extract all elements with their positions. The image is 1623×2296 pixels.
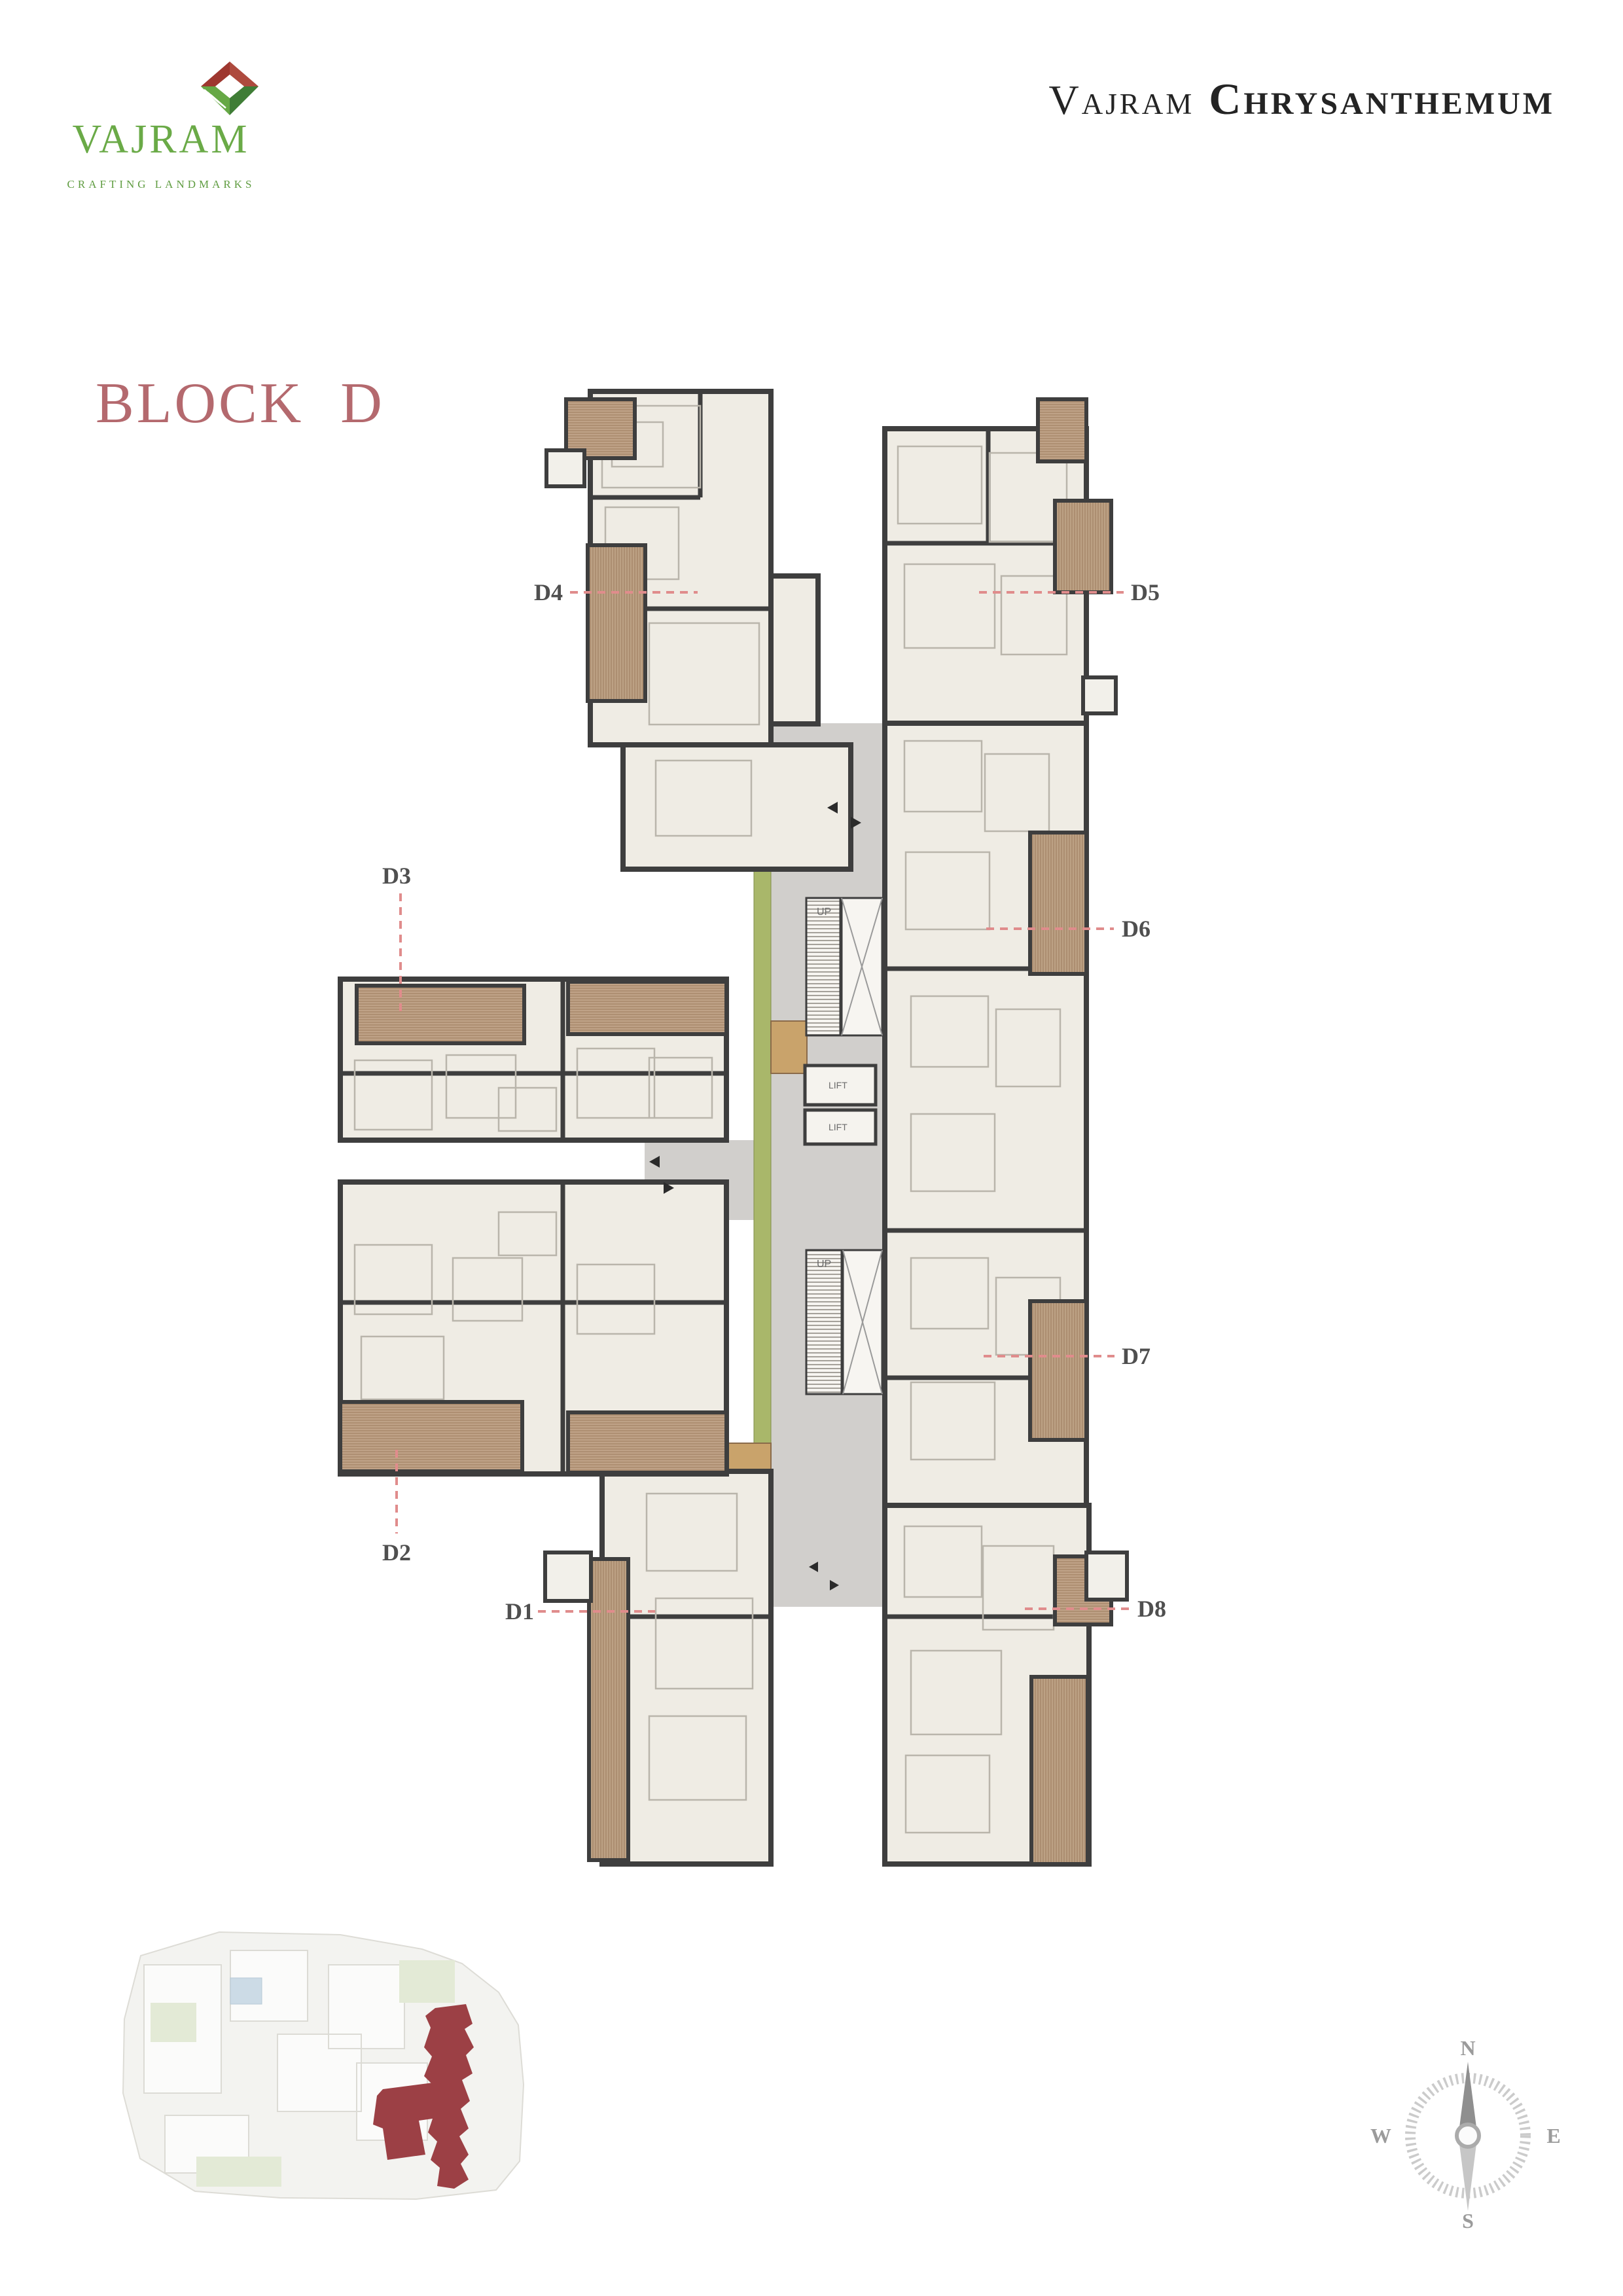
site-key-map <box>123 1932 524 2199</box>
unit-label-d3: D3 <box>382 863 411 889</box>
lift-core: LIFT LIFT <box>805 1066 876 1144</box>
stair-flight <box>806 898 840 1035</box>
balcony <box>357 986 524 1043</box>
unit-label-d7: D7 <box>1122 1343 1150 1369</box>
unit-label-d1: D1 <box>505 1598 534 1624</box>
balcony <box>1055 501 1111 592</box>
balcony <box>588 545 645 701</box>
balcony <box>568 1412 726 1473</box>
balcony <box>568 982 726 1034</box>
unit-label-d8: D8 <box>1137 1596 1166 1622</box>
compass-west-label: W <box>1370 2124 1391 2147</box>
compass-north-label: N <box>1460 2036 1475 2060</box>
unit-label-d2: D2 <box>382 1539 411 1566</box>
staircase-upper: UP <box>806 898 882 1035</box>
lift-label: LIFT <box>829 1080 847 1090</box>
balcony <box>589 1559 628 1860</box>
staircase-lower: UP <box>806 1250 882 1394</box>
unit-label-d5: D5 <box>1131 579 1160 605</box>
up-label: UP <box>817 906 831 918</box>
balcony <box>1030 1301 1086 1440</box>
balcony <box>1038 399 1086 461</box>
unit-label-d6: D6 <box>1122 916 1150 942</box>
compass-hub <box>1457 2125 1479 2147</box>
brochure-page: VAJRAM CRAFTING LANDMARKS VajramChrysant… <box>0 0 1623 2296</box>
compass-south-label: S <box>1462 2209 1474 2233</box>
balcony <box>1031 1677 1088 1864</box>
lift-label: LIFT <box>829 1122 847 1132</box>
balcony <box>1030 833 1086 974</box>
stair-flight <box>806 1250 842 1394</box>
compass-east-label: E <box>1546 2124 1560 2147</box>
unit-blocks <box>340 391 1089 1864</box>
unit-label-d4: D4 <box>534 579 563 605</box>
compass-rose: N W E S <box>1370 2036 1561 2233</box>
up-label: UP <box>817 1259 831 1270</box>
site-pool <box>230 1978 262 2004</box>
balcony <box>340 1402 522 1471</box>
plan-canvas: UP UP LIFT LIFT D4 <box>0 0 1623 2296</box>
